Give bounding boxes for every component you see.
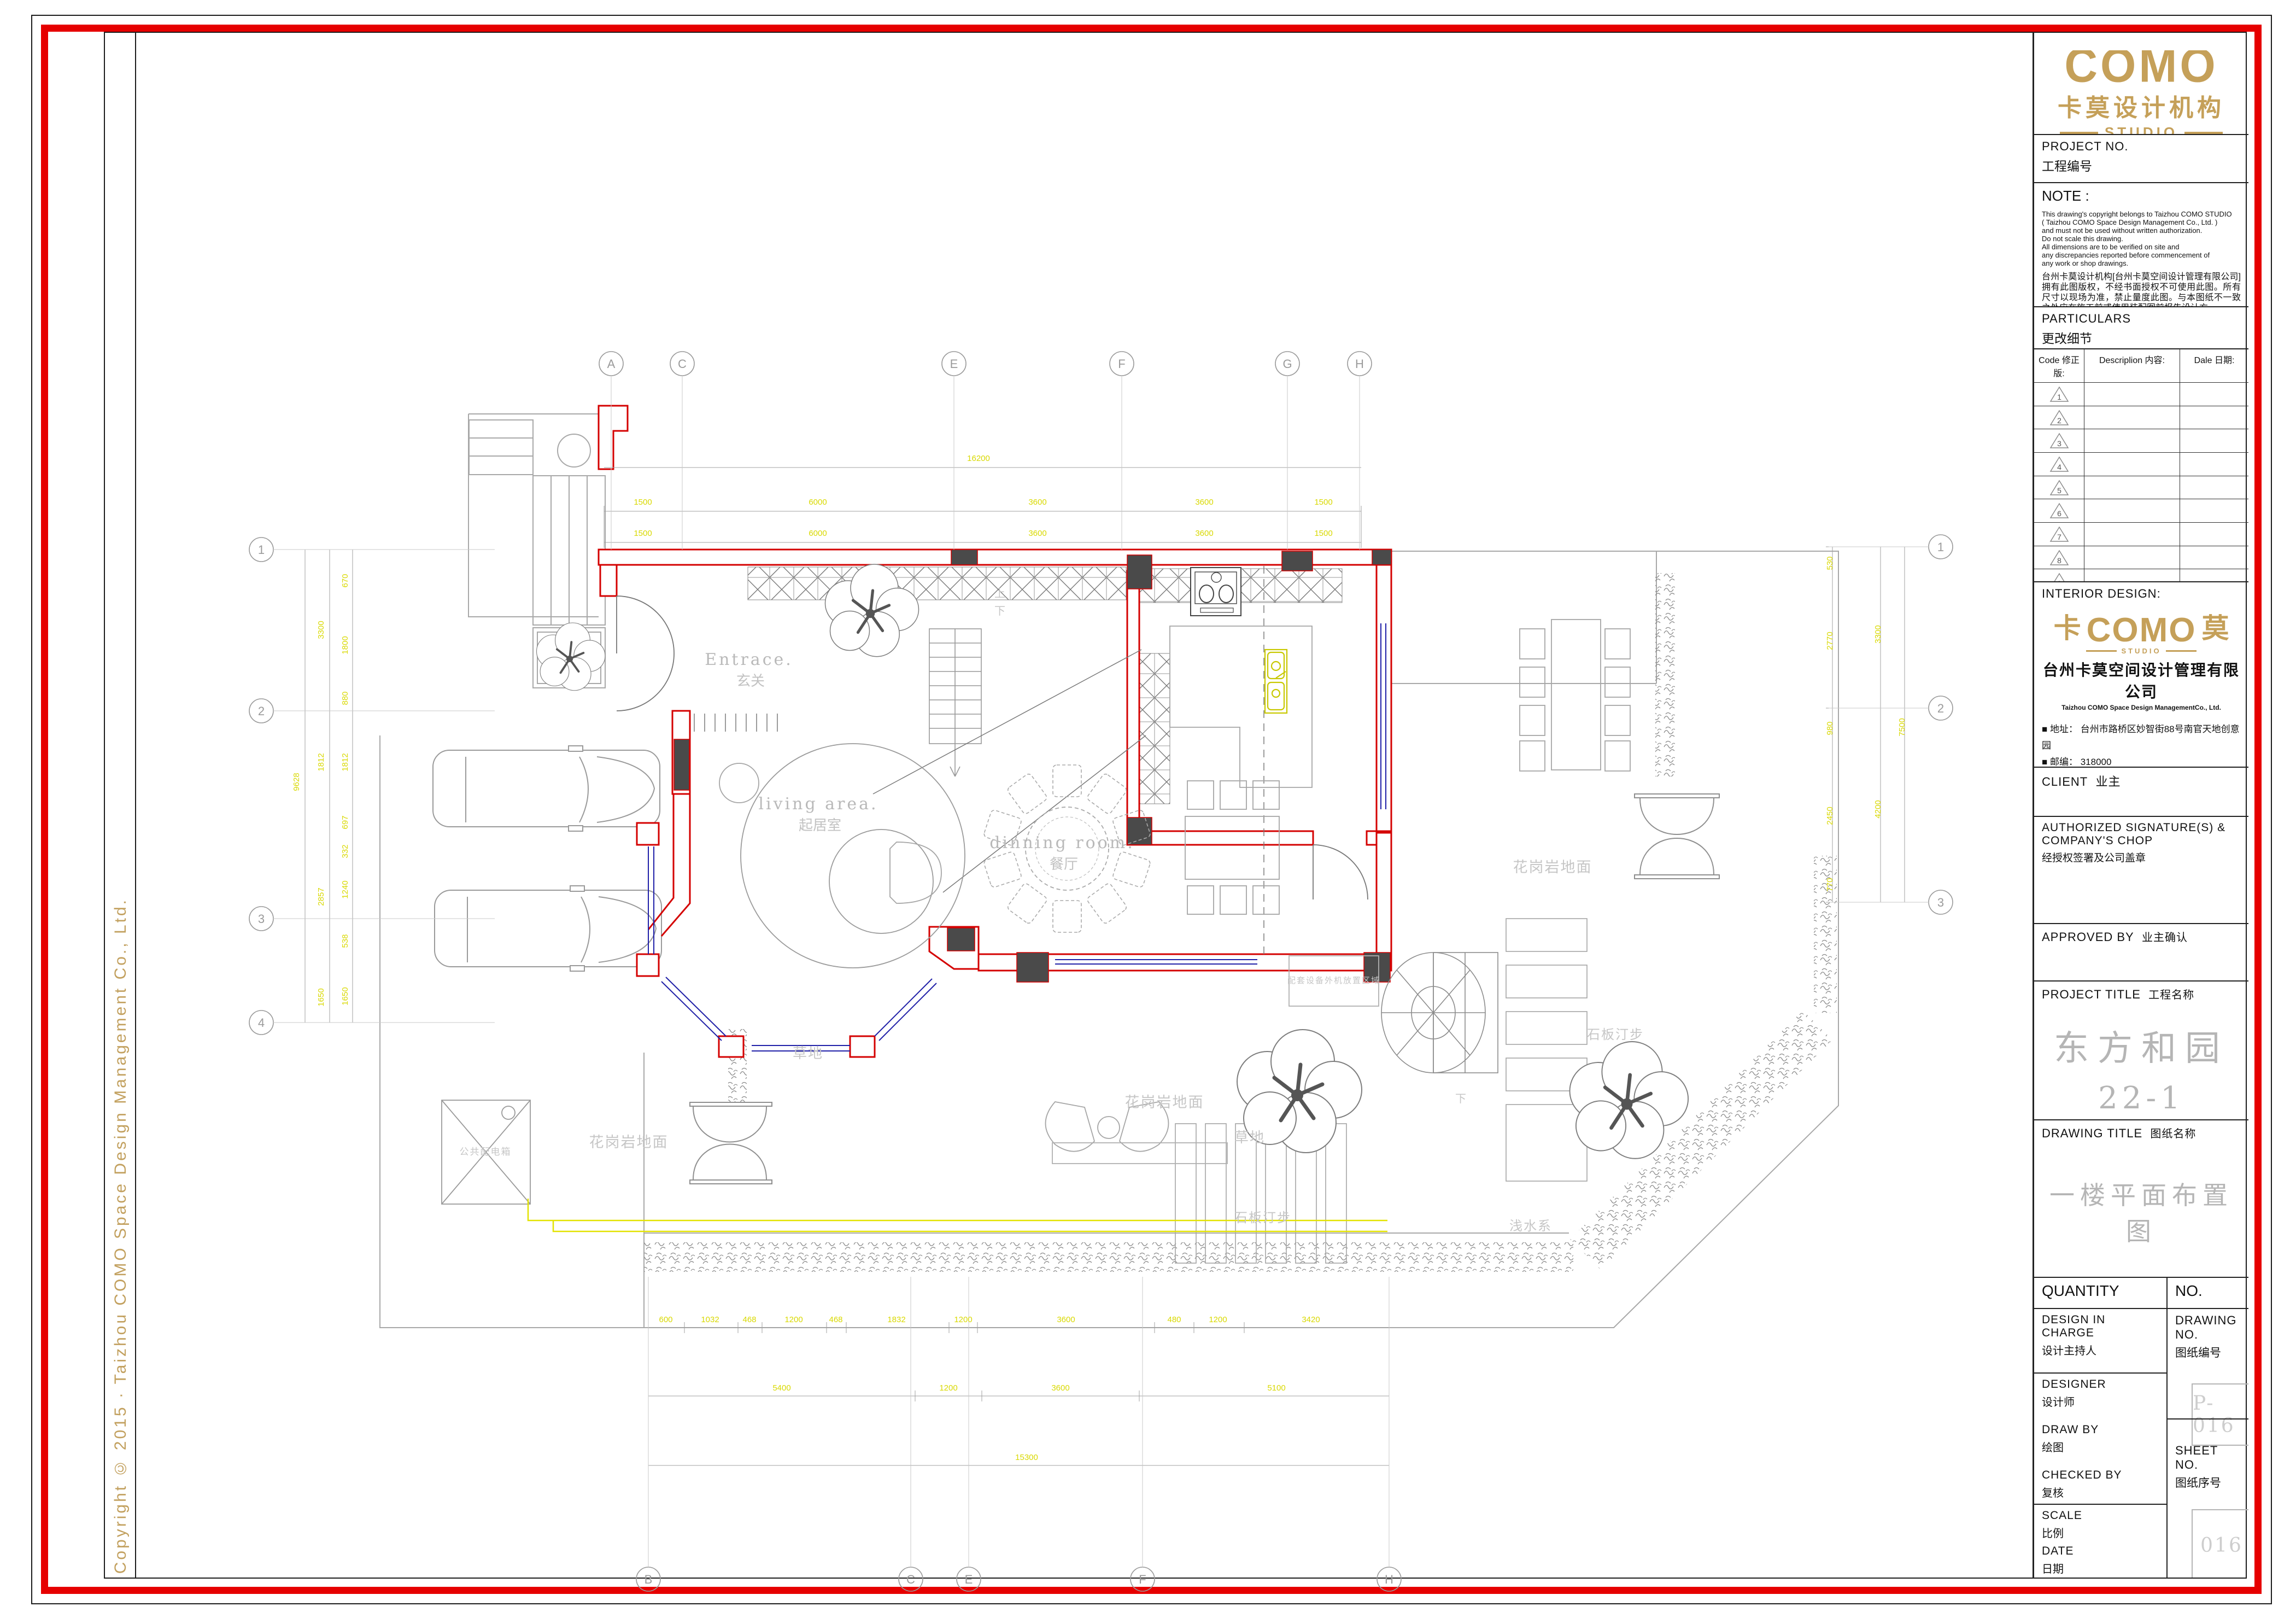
dimension-text: 3300 — [317, 621, 326, 639]
grid-bubble-label: E — [965, 1573, 973, 1586]
grid-bubble-label: H — [1385, 1573, 1393, 1586]
grid-bubble-label: B — [645, 1573, 653, 1586]
dimension-text: 7500 — [1897, 718, 1907, 736]
svg-text:1: 1 — [2057, 393, 2061, 401]
svg-text:7: 7 — [2057, 533, 2061, 541]
grid-bubble-label: C — [906, 1573, 915, 1586]
car-symbols — [433, 746, 661, 971]
particulars-header: PARTICULARS 更改细节 — [2034, 306, 2248, 348]
design-in-charge-cell: DESIGN IN CHARGE 设计主持人 — [2034, 1309, 2166, 1372]
site-label: 石板汀步 — [1587, 1027, 1644, 1042]
drawing-title-value: 一楼平面布置图 — [2042, 1176, 2241, 1248]
svg-text:6: 6 — [2057, 509, 2061, 518]
room-label-zh: 餐厅 — [1050, 856, 1078, 873]
note-chinese: 台州卡莫设计机构[台州卡莫空间设计管理有限公司]拥有此图版权，不经书面授权不可使… — [2042, 272, 2241, 306]
semicircle-steps — [690, 794, 1719, 1184]
revision-triangle-icon: 4 — [2049, 455, 2069, 473]
svg-text:5: 5 — [2057, 486, 2061, 495]
dimension-text: 1200 — [1209, 1315, 1227, 1324]
dimension-text: 1500 — [1314, 529, 1332, 538]
dimension-text: 1032 — [701, 1315, 719, 1324]
grid-bubble-label: F — [1118, 357, 1125, 371]
revision-row: 9 — [2034, 569, 2248, 581]
svg-text:3: 3 — [2057, 439, 2061, 448]
revision-row: 4 — [2034, 452, 2248, 476]
dimension-text: 980 — [1825, 721, 1835, 735]
company-name-zh: 台州卡莫空间设计管理有限公司 — [2042, 658, 2241, 702]
revision-row: 7 — [2034, 522, 2248, 546]
grid-bubble-label: G — [1282, 357, 1292, 371]
project-title-value: 东方和园 — [2042, 1020, 2241, 1071]
interior-design-label: INTERIOR DESIGN: — [2042, 587, 2241, 601]
dimension-text: 1650 — [341, 987, 350, 1005]
leader-lines — [694, 566, 1264, 954]
dimension-text: 1500 — [1314, 498, 1332, 507]
interior-design-section: INTERIOR DESIGN: 卡 COMO 莫 STUDIO 台州卡莫空间设… — [2034, 581, 2248, 767]
grid-bubble-label: 3 — [258, 912, 265, 926]
dining-chair — [1086, 773, 1128, 815]
col-date: Dale 日期: — [2180, 349, 2248, 382]
revision-triangle-icon: 9 — [2049, 572, 2069, 581]
dimension-text: 538 — [341, 934, 350, 948]
grid-bubble-label: 1 — [258, 543, 265, 557]
grid-bubble-label: 1 — [1937, 540, 1944, 554]
revision-triangle-icon: 7 — [2049, 525, 2069, 543]
dimension-text: 697 — [341, 815, 350, 829]
project-title-section: PROJECT TITLE 工程名称 东方和园 22-1 — [2034, 980, 2248, 1119]
dimension-text: 480 — [1167, 1315, 1181, 1324]
svg-text:2: 2 — [2057, 416, 2061, 425]
interior-logo: 卡 COMO 莫 — [2042, 606, 2241, 646]
client-section: CLIENT 业主 — [2034, 767, 2248, 816]
dimension-text: 9628 — [292, 773, 301, 791]
dining-chair — [1006, 773, 1048, 815]
revision-triangle-icon: 6 — [2049, 502, 2069, 519]
grid-bubble-label: E — [950, 357, 958, 371]
revision-row: 2 — [2034, 406, 2248, 429]
site-label: 花岗岩地面 — [589, 1134, 669, 1151]
site-label: 下 — [994, 604, 1006, 617]
site-label: 草地 — [1234, 1130, 1265, 1146]
kitchen-sink — [1265, 650, 1287, 713]
revision-row: 3 — [2034, 429, 2248, 452]
dimension-text: 3600 — [1195, 498, 1213, 507]
room-label-en: dinning room. — [989, 833, 1135, 852]
dimension-text: 1200 — [939, 1383, 957, 1393]
dimension-text: 1500 — [634, 529, 652, 538]
dimension-text: 1200 — [954, 1315, 972, 1324]
dimension-text: 468 — [829, 1315, 842, 1324]
company-contact-lines: ■ 地址： 台州市路桥区妙智街88号南官天地创意园■ 邮编： 318000■ 电… — [2042, 721, 2241, 767]
red-walls — [599, 406, 1391, 1057]
spiral-stair — [1381, 953, 1498, 1073]
room-label-zh: 起居室 — [799, 817, 841, 834]
hedge-bands — [644, 573, 1837, 1272]
logo-cn: 卡莫设计机构 — [2058, 88, 2225, 123]
dimension-text: 4200 — [1873, 800, 1883, 818]
note-line: All dimensions are to be verified on sit… — [2042, 243, 2241, 251]
quantity-label: QUANTITY — [2034, 1278, 2168, 1308]
site-label: 花岗岩地面 — [1513, 859, 1592, 876]
dimension-text: 2450 — [1825, 807, 1835, 825]
dimension-text: 468 — [742, 1315, 756, 1324]
revision-triangle-icon: 2 — [2049, 409, 2069, 427]
dimension-text: 3420 — [1302, 1315, 1320, 1324]
title-block: COMO 卡莫设计机构 STUDIO PROJECT NO. 工程编号 NOTE… — [2033, 32, 2247, 1579]
note-label: NOTE : — [2042, 188, 2241, 205]
dimension-text: 3600 — [1028, 529, 1046, 538]
note-line: ( Taizhou COMO Space Design Management C… — [2042, 218, 2241, 226]
contact-line: ■ 地址： 台州市路桥区妙智街88号南官天地创意园 — [2042, 721, 2241, 754]
site-label: 草地 — [793, 1045, 823, 1062]
grid-bubble-label: 3 — [1937, 896, 1944, 909]
floor-plan-canvas: ACEFGHBCEFH1234123 162001500600036003600… — [0, 0, 2296, 1624]
room-label-en: living area. — [758, 795, 878, 814]
dimension-text: 880 — [341, 691, 350, 705]
grid-bubble-label: F — [1139, 1573, 1146, 1586]
site-label: 石板汀步 — [1234, 1210, 1291, 1225]
revision-row: 6 — [2034, 499, 2248, 522]
no-label: NO. — [2168, 1278, 2248, 1308]
dimension-text: 2770 — [1825, 632, 1835, 650]
dining-chair — [1112, 851, 1151, 888]
site-label: 下 — [1455, 1092, 1467, 1105]
dimension-text: 332 — [341, 844, 350, 858]
dimension-text: 2857 — [317, 887, 326, 906]
dimension-text: 1650 — [317, 988, 326, 1006]
dimension-text: 1200 — [784, 1315, 803, 1324]
dimension-text: 1812 — [317, 753, 326, 771]
dimension-text: 1832 — [887, 1315, 905, 1324]
site-label: 公共配电箱 — [460, 1147, 512, 1158]
company-logo-block: COMO 卡莫设计机构 STUDIO — [2034, 50, 2248, 135]
dimension-text: 6000 — [809, 498, 827, 507]
note-english: This drawing's copyright belongs to Taiz… — [2042, 210, 2241, 267]
revision-triangle-icon: 1 — [2049, 385, 2069, 403]
room-label-zh: 玄关 — [736, 673, 765, 690]
dimension-text: 600 — [659, 1315, 672, 1324]
room-label-en: Entrace. — [705, 650, 793, 669]
grid-bubble-label: 2 — [1937, 702, 1944, 715]
note-line: any work or shop drawings. — [2042, 259, 2241, 267]
signature-grid: DESIGN IN CHARGE 设计主持人 DESIGNER 设计师 DRAW… — [2034, 1308, 2248, 1578]
dining-chair — [1006, 883, 1048, 925]
revision-triangle-icon: 5 — [2049, 479, 2069, 496]
note-line: and must not be used without written aut… — [2042, 226, 2241, 235]
col-description: Descriplion 内容: — [2084, 349, 2180, 382]
particulars-table: Code 修正版: Descriplion 内容: Dale 日期: 12345… — [2034, 348, 2248, 581]
project-no-label: PROJECT NO. — [2042, 139, 2241, 154]
dimension-text: 3600 — [1051, 1383, 1069, 1393]
grid-bubble-label: H — [1355, 357, 1364, 371]
dimension-text: 1812 — [341, 753, 350, 771]
designer-cell: DESIGNER 设计师 DRAW BY 绘图 CHECKED BY 复核 — [2034, 1372, 2166, 1504]
scale-date-cell: SCALE 比例 DATE 日期 — [2034, 1504, 2166, 1578]
interior-stair — [929, 629, 981, 776]
dimension-text: 3300 — [1873, 625, 1883, 643]
revision-row: 1 — [2034, 382, 2248, 406]
dimension-text: 530 — [1825, 556, 1835, 570]
dimension-text: 1800 — [341, 636, 350, 654]
dimension-text: 5100 — [1267, 1383, 1285, 1393]
grid-bubble-label: 4 — [258, 1016, 265, 1030]
dimension-text: 3600 — [1028, 498, 1046, 507]
note-line: This drawing's copyright belongs to Taiz… — [2042, 210, 2241, 218]
grid-bubble-label: A — [607, 357, 616, 371]
dimension-text: 3600 — [1057, 1315, 1075, 1324]
stove — [1191, 568, 1241, 616]
svg-text:4: 4 — [2057, 463, 2061, 471]
site-label: 浅水系 — [1509, 1218, 1552, 1234]
dining-chair — [1053, 901, 1081, 932]
company-name-en: Taizhou COMO Space Design ManagementCo.,… — [2042, 704, 2241, 711]
dimension-text: 3600 — [1195, 529, 1213, 538]
dimension-text: 670 — [341, 574, 350, 587]
dining-chair — [1053, 765, 1081, 797]
svg-text:8: 8 — [2057, 556, 2061, 565]
note-section: NOTE : This drawing's copyright belongs … — [2034, 182, 2248, 306]
project-no-section: PROJECT NO. 工程编号 — [2034, 135, 2248, 182]
dimension-text: 15300 — [1015, 1453, 1038, 1462]
sheet-no-value: 016 — [2192, 1509, 2248, 1578]
grid-bubble-label: C — [678, 357, 687, 371]
note-line: Do not scale this drawing. — [2042, 235, 2241, 243]
dimension-text: 770 — [1825, 878, 1835, 891]
quantity-no-row: QUANTITY NO. — [2034, 1277, 2248, 1308]
contact-line: ■ 邮编： 318000 — [2042, 754, 2241, 767]
revision-triangle-icon: 8 — [2049, 549, 2069, 566]
drawing-sheet: { "page":{"copyright":"Copyright © 2015 … — [0, 0, 2296, 1624]
furniture — [719, 620, 1630, 1164]
col-code: Code 修正版: — [2034, 349, 2084, 382]
logo-como: COMO — [2064, 50, 2218, 88]
site-label: 上 — [994, 587, 1006, 600]
revision-row: 5 — [2034, 476, 2248, 499]
dining-chair — [1086, 883, 1128, 925]
logo-studio: STUDIO — [2060, 124, 2223, 135]
site-label: 配套设备外机放置区域 — [1287, 975, 1380, 985]
drawing-title-section: DRAWING TITLE 图纸名称 一楼平面布置图 — [2034, 1119, 2248, 1277]
site-label: 花岗岩地面 — [1125, 1094, 1204, 1111]
structural-columns — [674, 550, 1391, 982]
dimension-text: 6000 — [809, 529, 827, 538]
dimension-text: 1240 — [341, 880, 350, 898]
dimension-text: 16200 — [967, 454, 990, 463]
grid-bubble-label: 2 — [258, 704, 265, 718]
dimension-text: 5400 — [772, 1383, 790, 1393]
revision-row: 8 — [2034, 546, 2248, 569]
dimension-text: 1500 — [634, 498, 652, 507]
authorized-section: AUTHORIZED SIGNATURE(S) & COMPANY'S CHOP… — [2034, 816, 2248, 923]
note-line: any discrepancies reported before commen… — [2042, 251, 2241, 259]
approved-section: APPROVED BY 业主确认 — [2034, 923, 2248, 980]
revision-triangle-icon: 3 — [2049, 432, 2069, 449]
